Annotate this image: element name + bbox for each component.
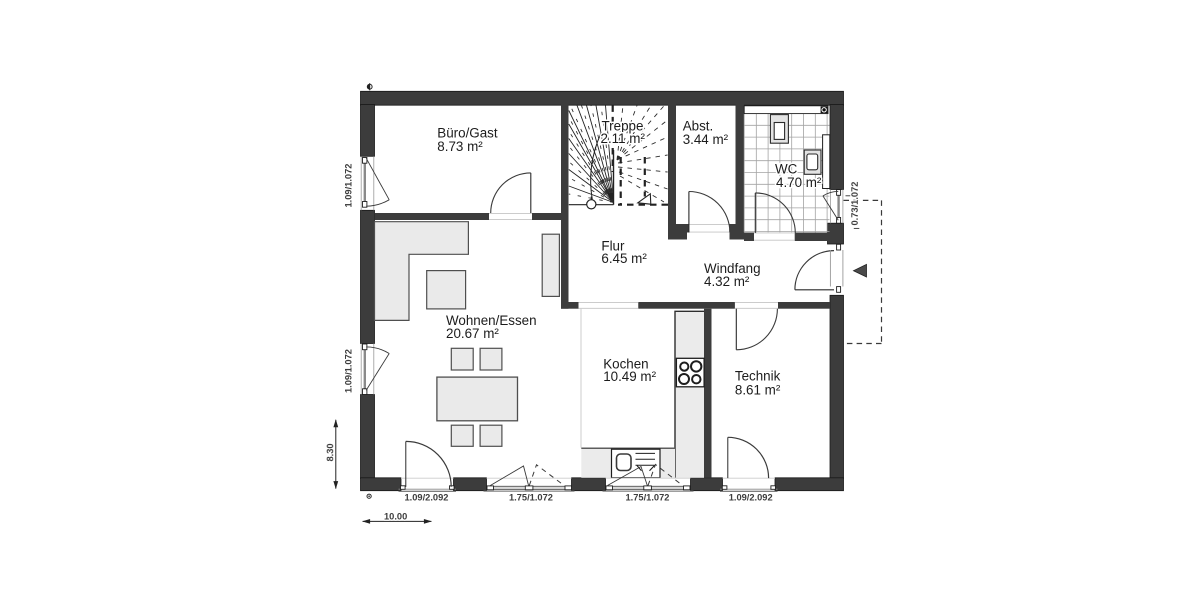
svg-text:8.73 m²: 8.73 m² [437,139,483,154]
svg-text:1.09/2.092: 1.09/2.092 [729,492,773,502]
svg-text:0.73/1.072: 0.73/1.072 [850,182,860,226]
svg-text:1.09/1.072: 1.09/1.072 [344,349,354,393]
svg-text:8.30: 8.30 [325,443,335,461]
svg-text:2.11 m²: 2.11 m² [601,131,646,146]
svg-text:10.00: 10.00 [384,511,407,521]
svg-text:1.75/1.072: 1.75/1.072 [509,492,553,502]
svg-text:1.09/1.072: 1.09/1.072 [344,164,354,208]
svg-text:1.75/1.072: 1.75/1.072 [626,492,670,502]
svg-text:3.44 m²: 3.44 m² [683,132,729,147]
svg-text:8.61 m²: 8.61 m² [735,382,781,397]
svg-text:20.67 m²: 20.67 m² [446,326,499,341]
svg-text:4.32 m²: 4.32 m² [704,274,750,289]
svg-text:Technik: Technik [735,368,781,383]
svg-text:1.09/2.092: 1.09/2.092 [405,492,449,502]
svg-text:6.45 m²: 6.45 m² [601,251,647,266]
svg-text:10.49 m²: 10.49 m² [603,369,656,384]
svg-text:4.70 m²: 4.70 m² [776,175,822,190]
